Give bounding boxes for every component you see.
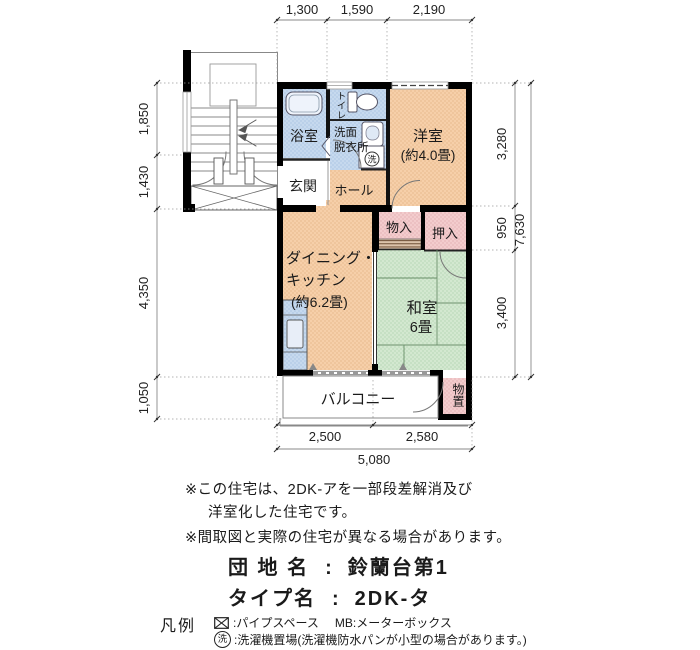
dk-label-1: ダイニング・	[286, 250, 376, 267]
legend-title: 凡例	[160, 612, 196, 636]
note-line-2: 洋室化した住宅です。	[208, 501, 357, 522]
estate-name-value: 鈴蘭台第1	[348, 551, 449, 580]
entrance-door-leaf	[214, 158, 223, 184]
toilet-tank-icon	[348, 92, 357, 112]
dim-left-1: 1,850	[136, 103, 151, 136]
legend-row-1: :パイプスペース MB:メーターボックス	[214, 614, 452, 631]
toilet-label: トイレ	[335, 91, 347, 120]
legend-washer-text: :洗濯機置場(洗濯機防水パンが小型の場合があります。)	[234, 631, 527, 648]
dim-left-4: 1,050	[136, 382, 151, 415]
bathroom-label: 浴室	[290, 128, 318, 144]
storage-shelf	[378, 239, 421, 249]
dim-right-3: 3,400	[494, 297, 509, 330]
dim-bottom-1: 2,500	[309, 429, 342, 444]
note-line-3: ※間取図と実際の住宅が異なる場合があります。	[185, 526, 511, 547]
western-room-size: (約4.0畳)	[401, 148, 456, 163]
dk-label-2: キッチン	[286, 272, 346, 289]
outdoor-storage-label: 物置	[451, 383, 465, 407]
dim-right-total: 7,630	[512, 214, 527, 247]
dk-washitsu-partition	[374, 252, 377, 364]
type-name-value: 2DK-タ	[355, 582, 432, 611]
toilet-bowl-icon	[357, 94, 378, 110]
washer-symbol-text: 洗	[367, 154, 376, 165]
dim-bottom-total: 5,080	[358, 452, 391, 467]
stair-rail	[230, 100, 237, 174]
estate-name-row: 団 地 名 : 鈴蘭台第1	[228, 551, 449, 580]
washer-symbol: 洗	[365, 152, 379, 166]
washroom-label-1: 洗面	[334, 126, 357, 139]
dk-size-label: (約6.2畳)	[291, 294, 348, 310]
dim-left-3: 4,350	[136, 277, 151, 310]
legend-mb-text: MB:メーターボックス	[335, 614, 452, 631]
type-name-label: タイプ名	[228, 582, 316, 611]
pipe-space-box	[191, 186, 277, 210]
balcony-label: バルコニー	[321, 391, 396, 408]
kitchen-counter-icon	[283, 300, 307, 370]
type-name-colon: :	[332, 588, 341, 611]
entrance-door-leaf	[245, 158, 254, 184]
stairwell	[183, 50, 278, 212]
floorplan-drawing: 洗	[0, 0, 700, 472]
hall-label: ホール	[334, 183, 373, 198]
dim-top-2: 1,590	[341, 2, 374, 17]
washer-legend-icon: 洗	[214, 631, 231, 648]
legend-row-2: 洗 :洗濯機置場(洗濯機防水パンが小型の場合があります。)	[214, 631, 527, 648]
dim-right-1: 3,280	[494, 128, 509, 161]
kitchen-sink-icon	[287, 320, 303, 348]
western-room-area	[390, 88, 466, 206]
estate-name-label: 団 地 名	[228, 551, 309, 580]
note-line-1: ※この住宅は、2DK-アを一部段差解消及び	[185, 478, 473, 499]
dim-top-1: 1,300	[286, 2, 319, 17]
pipe-space-icon	[214, 617, 229, 629]
floorplan-page: 洗	[0, 0, 700, 650]
entrance-label: 玄関	[289, 178, 317, 194]
japanese-room-label: 和室	[406, 299, 437, 317]
closet-label: 押入	[432, 226, 458, 241]
storage-label: 物入	[386, 220, 412, 235]
dim-bottom-2: 2,580	[406, 429, 439, 444]
estate-name-colon: :	[325, 557, 334, 580]
washroom-label-2: 脱衣所	[334, 140, 369, 154]
type-name-row: タイプ名 : 2DK-タ	[228, 582, 431, 611]
legend-pipe-text: :パイプスペース	[233, 614, 319, 631]
western-room-label: 洋室	[413, 128, 443, 145]
dim-left-2: 1,430	[136, 166, 151, 199]
japanese-room-size: 6畳	[410, 320, 433, 336]
dim-top-3: 2,190	[413, 2, 446, 17]
dim-right-2: 950	[494, 217, 509, 239]
